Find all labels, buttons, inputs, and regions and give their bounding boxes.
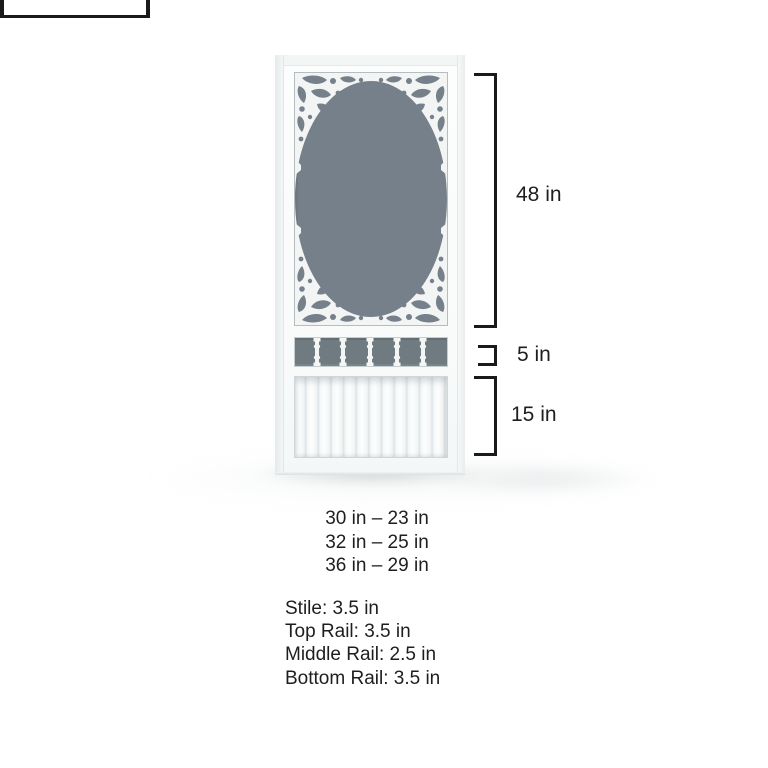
width-option-32: 32 in – 25 in: [272, 531, 482, 555]
component-specs: Stile: 3.5 in Top Rail: 3.5 in Middle Ra…: [285, 597, 440, 690]
dimension-bracket-48in: [474, 73, 497, 328]
width-option-36: 36 in – 29 in: [272, 554, 482, 578]
dimension-label-15in: 15 in: [511, 403, 557, 427]
screen-panel-scrollwork: [295, 73, 447, 325]
spec-bottom-rail: Bottom Rail: 3.5 in: [285, 667, 440, 690]
width-option-30: 30 in – 23 in: [272, 507, 482, 531]
beadboard-panel: [295, 377, 447, 457]
door-bottom-edge: [275, 472, 465, 475]
spindle-section: [295, 338, 447, 366]
dimension-label-5in: 5 in: [517, 343, 551, 367]
door-top-rail: [275, 55, 465, 66]
spindle-art: [295, 338, 447, 366]
dimension-bracket-width: [0, 0, 150, 18]
product-dimension-diagram: 48 in 5 in 15 in 30 in – 23 in 32 in – 2…: [0, 0, 768, 768]
screen-door-illustration: [275, 55, 465, 475]
door-left-edge: [275, 55, 284, 475]
spec-middle-rail: Middle Rail: 2.5 in: [285, 643, 440, 666]
door-right-edge: [457, 55, 465, 475]
spec-top-rail: Top Rail: 3.5 in: [285, 620, 440, 643]
dimension-label-48in: 48 in: [516, 183, 562, 207]
width-options: 30 in – 23 in 32 in – 25 in 36 in – 29 i…: [272, 507, 482, 578]
dimension-bracket-5in: [478, 345, 497, 366]
scrollwork-oval-art: [295, 73, 447, 325]
dimension-bracket-15in: [474, 376, 497, 456]
spec-stile: Stile: 3.5 in: [285, 597, 440, 620]
